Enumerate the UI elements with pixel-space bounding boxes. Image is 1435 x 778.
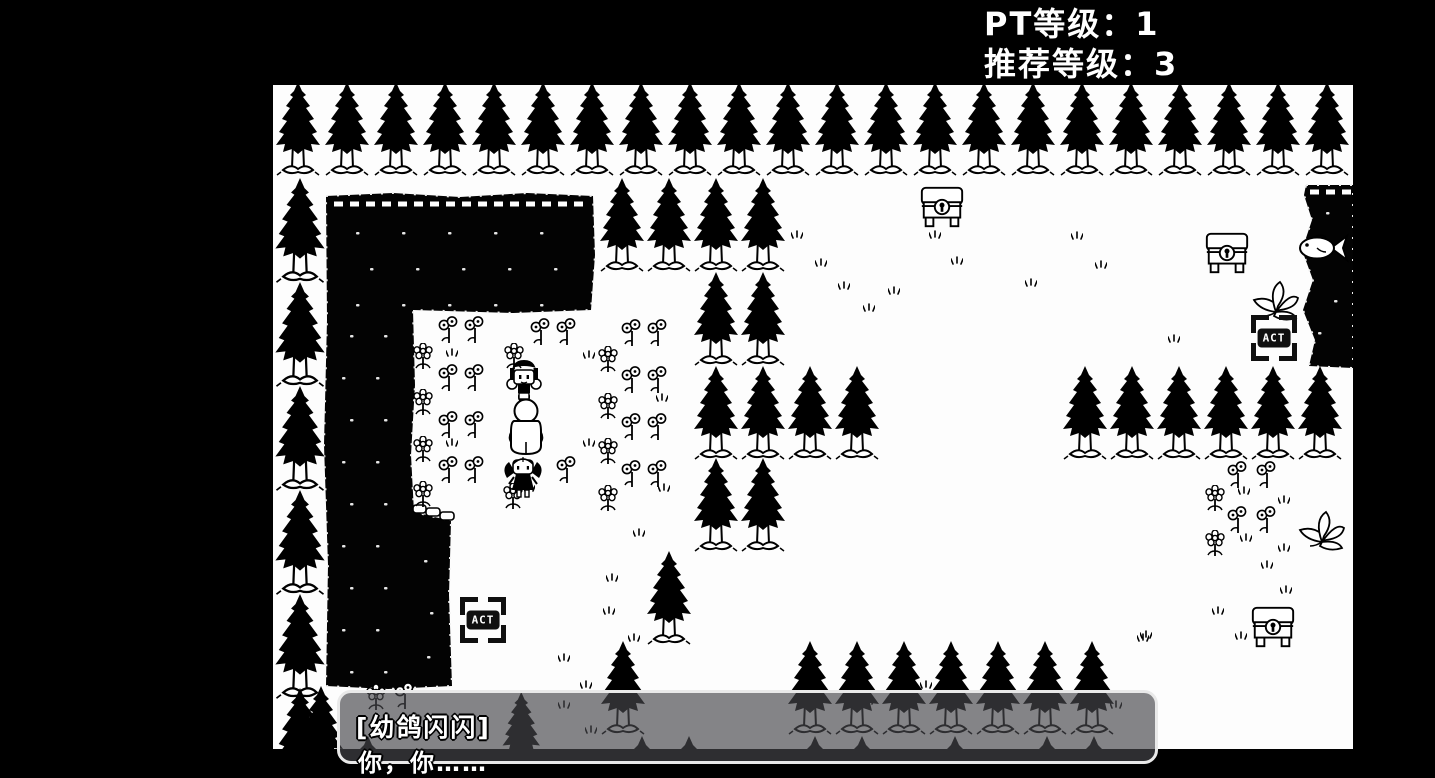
hud-recommended-level: 推荐等级：3	[984, 44, 1178, 84]
game-viewport: ACTACT	[273, 85, 1353, 749]
hud-pt-level: PT等级：1	[984, 4, 1178, 44]
act-cursor[interactable]: ACT	[1251, 315, 1297, 361]
dialog-box[interactable]: [幼鸽闪闪] 你，你……	[337, 690, 1158, 764]
hud: PT等级：1 推荐等级：3	[984, 4, 1178, 84]
act-cursor[interactable]: ACT	[460, 597, 506, 643]
act-cursor-label[interactable]: ACT	[1258, 329, 1291, 348]
dialog-speaker-name: [幼鸽闪闪]	[356, 708, 491, 744]
terrain-layer	[273, 85, 1353, 749]
act-cursor-label[interactable]: ACT	[467, 611, 500, 630]
dialog-body-text: 你，你……	[358, 743, 488, 778]
